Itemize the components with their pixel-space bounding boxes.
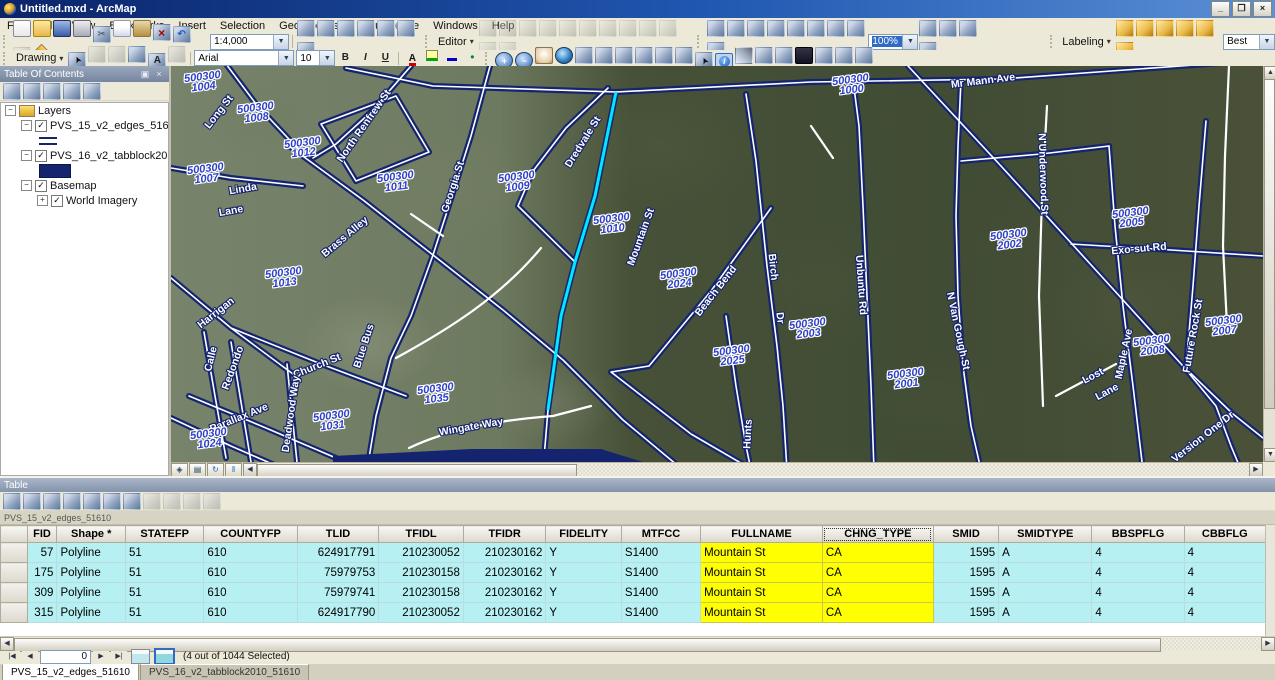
cell-cbbflg[interactable]: 4 xyxy=(1184,603,1265,623)
go-forward-extent-icon[interactable] xyxy=(635,47,653,64)
cell-smidtype[interactable]: A xyxy=(999,583,1092,603)
row-selector[interactable] xyxy=(1,583,28,603)
chevron-down-icon[interactable]: ▼ xyxy=(278,51,293,65)
cell-statefp[interactable]: 51 xyxy=(125,563,203,583)
publish-service-icon[interactable] xyxy=(959,20,977,37)
cell-smid[interactable]: 1595 xyxy=(933,543,998,563)
cell-smidtype[interactable]: A xyxy=(999,563,1092,583)
cell-countyfp[interactable]: 610 xyxy=(204,583,297,603)
layer-visibility-checkbox[interactable]: ✓ xyxy=(51,195,63,207)
cell-statefp[interactable]: 51 xyxy=(125,543,203,563)
cell-countyfp[interactable]: 610 xyxy=(204,543,297,563)
cell-tfidr[interactable]: 210230162 xyxy=(463,543,546,563)
cell-tfidr[interactable]: 210230162 xyxy=(463,563,546,583)
search-window-icon[interactable] xyxy=(357,20,375,37)
related-tables-icon[interactable] xyxy=(23,493,41,510)
arctoolbox-window-icon[interactable] xyxy=(377,20,395,37)
cell-tfidl[interactable]: 210230052 xyxy=(379,543,464,563)
clear-selected-features-icon[interactable] xyxy=(675,47,693,64)
list-by-visibility-icon[interactable] xyxy=(43,83,61,100)
expander-icon[interactable]: − xyxy=(5,105,16,116)
cell-shape-[interactable]: Polyline xyxy=(57,583,126,603)
close-button[interactable]: × xyxy=(1253,1,1272,17)
column-header-tfidr[interactable]: TFIDR xyxy=(463,526,546,543)
layout-view-button[interactable]: ▤ xyxy=(189,463,206,477)
fill-color-icon[interactable] xyxy=(423,47,441,64)
arcmap-window: Untitled.mxd - ArcMap _ ❐ × FileEditView… xyxy=(0,0,1275,680)
toolbar-grip[interactable] xyxy=(3,52,9,65)
zoom-percent-value: 100% xyxy=(872,36,902,47)
toc-tree: −Layers−✓PVS_15_v2_edges_51610−✓PVS_16_v… xyxy=(0,102,169,476)
html-popup-icon[interactable] xyxy=(755,47,773,64)
grid-view-icon[interactable] xyxy=(807,20,825,37)
label-priority-icon[interactable] xyxy=(1136,20,1154,37)
select-by-attributes-icon[interactable] xyxy=(43,493,61,510)
selection-status: (4 out of 1044 Selected) xyxy=(183,651,290,662)
cut-polygons-icon xyxy=(639,20,657,37)
lock-labels-icon[interactable] xyxy=(1176,20,1194,37)
table-row[interactable]: 309Polyline51610759797412102301582102301… xyxy=(1,583,1266,603)
table-row[interactable]: 175Polyline51610759797532102301582102301… xyxy=(1,563,1266,583)
editor-menu[interactable]: Editor xyxy=(434,36,478,48)
column-header-fullname[interactable]: FULLNAME xyxy=(701,526,823,543)
cell-fidelity[interactable]: Y xyxy=(546,563,621,583)
field-calculator-icon xyxy=(183,493,201,510)
list-by-source-icon[interactable] xyxy=(23,83,41,100)
pin-icon[interactable]: ▣ xyxy=(139,69,151,80)
chevron-down-icon[interactable]: ▼ xyxy=(1259,35,1274,49)
map-scale-settings-icon[interactable] xyxy=(297,20,315,37)
window-title: Untitled.mxd - ArcMap xyxy=(20,3,136,15)
pause-labeling-icon[interactable] xyxy=(1196,20,1214,37)
close-icon[interactable]: × xyxy=(153,69,165,79)
font-size-combo[interactable]: 10 ▼ xyxy=(296,50,335,66)
label-weight-icon[interactable] xyxy=(1156,20,1174,37)
paste-rows-icon xyxy=(163,493,181,510)
find-icon[interactable] xyxy=(795,47,813,64)
sheet-tab-pvs_16_v2_tabblock2010_51610[interactable]: PVS_16_v2_tabblock2010_51610 xyxy=(140,664,309,680)
cell-fullname[interactable]: Mountain St xyxy=(701,603,823,623)
time-slider-icon[interactable] xyxy=(835,47,853,64)
cell-tfidl[interactable]: 210230052 xyxy=(379,603,464,623)
paste-icon[interactable] xyxy=(133,20,151,37)
toolbar-grip[interactable] xyxy=(3,35,9,48)
layer-label: World Imagery xyxy=(66,195,137,207)
cell-cbbflg[interactable]: 4 xyxy=(1184,563,1265,583)
row-selector[interactable] xyxy=(1,603,28,623)
toolbar-grip[interactable] xyxy=(425,35,431,48)
map-horizontal-scrollbar[interactable]: ◈ ▤ ↻ ‖ ◀ ▶ xyxy=(171,462,1263,477)
cell-smid[interactable]: 1595 xyxy=(933,583,998,603)
chevron-down-icon[interactable]: ▼ xyxy=(902,35,917,49)
table-window-title: Table xyxy=(4,480,28,491)
pause-drawing-button[interactable]: ‖ xyxy=(225,463,242,477)
map-view[interactable]: Long StNorth Renfrew StGeorgia StLindaLa… xyxy=(171,66,1263,462)
column-header-chng-type[interactable]: CHNG_TYPE xyxy=(822,526,933,543)
first-record-button[interactable]: |◀ xyxy=(4,651,20,663)
record-navigation-bar: |◀ ◀ 0 ▶ ▶| (4 out of 1044 Selected) xyxy=(0,649,1275,664)
zoom-percent-combo[interactable]: 100% ▼ xyxy=(868,34,918,50)
rotate-element-icon xyxy=(88,46,106,63)
map-hscroll-track[interactable] xyxy=(257,464,1249,476)
python-window-icon[interactable] xyxy=(397,20,415,37)
endpoint-arc-icon xyxy=(539,20,557,37)
cell-shape-[interactable]: Polyline xyxy=(57,563,126,583)
toc-title: Table Of Contents xyxy=(4,69,84,80)
grid-horizontal-scrollbar[interactable]: ◀ ▶ xyxy=(0,636,1275,650)
restore-button[interactable]: ❐ xyxy=(1232,1,1251,17)
cell-countyfp[interactable]: 610 xyxy=(204,603,297,623)
cell-tlid[interactable]: 75979741 xyxy=(297,583,379,603)
link-table-icon[interactable] xyxy=(847,20,865,37)
refresh-view-button[interactable]: ↻ xyxy=(207,463,224,477)
cell-fullname[interactable]: Mountain St xyxy=(701,543,823,563)
table-source-label: PVS_15_v2_edges_51610 xyxy=(4,513,111,523)
label-quality-combo[interactable]: Best ▼ xyxy=(1223,34,1275,50)
italic-button[interactable] xyxy=(356,50,374,67)
last-record-button[interactable]: ▶| xyxy=(111,651,127,663)
cell-bbspflg[interactable]: 4 xyxy=(1092,583,1184,603)
cell-chng-type[interactable]: CA xyxy=(822,583,933,603)
layer-label: PVS_15_v2_edges_51610 xyxy=(50,120,169,132)
scroll-right-icon[interactable]: ▶ xyxy=(1249,463,1263,477)
copy-icon[interactable] xyxy=(113,20,131,37)
undo-icon[interactable] xyxy=(173,26,191,43)
page-layout-icon[interactable] xyxy=(919,20,937,37)
label-manager-icon[interactable] xyxy=(1116,20,1134,37)
data-view-button[interactable]: ◈ xyxy=(171,463,188,477)
switch-selection-icon[interactable] xyxy=(63,493,81,510)
toolbar-grip[interactable] xyxy=(1050,35,1056,48)
cell-tlid[interactable]: 624917791 xyxy=(297,543,379,563)
cell-statefp[interactable]: 51 xyxy=(125,603,203,623)
cell-bbspflg[interactable]: 4 xyxy=(1092,603,1184,623)
list-by-selection-icon[interactable] xyxy=(63,83,81,100)
cell-mtfcc[interactable]: S1400 xyxy=(621,603,700,623)
go-to-xy-icon[interactable] xyxy=(775,47,793,64)
line-color-icon[interactable] xyxy=(443,49,461,66)
show-selected-records-button[interactable] xyxy=(154,648,175,665)
column-header-countyfp[interactable]: COUNTYFP xyxy=(204,526,297,543)
split-tool-icon xyxy=(659,20,677,37)
chevron-down-icon[interactable]: ▼ xyxy=(319,51,334,65)
table-row[interactable]: 57Polyline516106249177912102300522102301… xyxy=(1,543,1266,563)
cell-fidelity[interactable]: Y xyxy=(546,543,621,563)
cell-smidtype[interactable]: A xyxy=(999,543,1092,563)
toc-options-icon[interactable] xyxy=(83,83,101,100)
title-bar: Untitled.mxd - ArcMap _ ❐ × xyxy=(0,0,1275,18)
column-header-fidelity[interactable]: FIDELITY xyxy=(546,526,621,543)
zoom-georeference-icon[interactable] xyxy=(767,20,785,37)
point-tool-icon xyxy=(579,20,597,37)
pan-georeference-icon[interactable] xyxy=(747,20,765,37)
cell-cbbflg[interactable]: 4 xyxy=(1184,543,1265,563)
map-vertical-scrollbar[interactable]: ▲ ▼ xyxy=(1263,66,1275,462)
column-header-mtfcc[interactable]: MTFCC xyxy=(621,526,700,543)
layer-visibility-checkbox[interactable]: ✓ xyxy=(35,120,47,132)
cell-tfidl[interactable]: 210230158 xyxy=(379,583,464,603)
delete-field-icon xyxy=(203,493,221,510)
cell-mtfcc[interactable]: S1400 xyxy=(621,563,700,583)
tabblock-polygon xyxy=(333,449,643,462)
cell-shape-[interactable]: Polyline xyxy=(57,603,126,623)
toc-node-world-imagery[interactable]: +✓World Imagery xyxy=(1,193,168,208)
clear-selection-icon[interactable] xyxy=(83,493,101,510)
expander-icon[interactable]: − xyxy=(21,120,32,131)
cell-cbbflg[interactable]: 4 xyxy=(1184,583,1265,603)
grid-vertical-scrollbar[interactable] xyxy=(1265,525,1275,636)
map-scale-combo[interactable]: 1:4,000 ▼ xyxy=(210,34,289,50)
row-selector[interactable] xyxy=(1,563,28,583)
drawing-menu[interactable]: Drawing xyxy=(12,52,67,64)
cell-mtfcc[interactable]: S1400 xyxy=(621,543,700,563)
zoom-to-selected-elements-icon xyxy=(108,46,126,63)
toc-legend-symbol xyxy=(1,133,168,148)
print-icon[interactable] xyxy=(73,20,91,37)
expander-icon[interactable]: − xyxy=(21,180,32,191)
data-driven-pages-icon[interactable] xyxy=(939,20,957,37)
label-quality-value: Best xyxy=(1227,36,1259,47)
scroll-left-icon[interactable]: ◀ xyxy=(243,463,257,477)
toc-node-pvs-15-v2-edges-51610[interactable]: −✓PVS_15_v2_edges_51610 xyxy=(1,118,168,133)
copy-rows-icon xyxy=(143,493,161,510)
table-options-icon[interactable] xyxy=(3,493,21,510)
toc-node-basemap[interactable]: −✓Basemap xyxy=(1,178,168,193)
column-header-statefp[interactable]: STATEFP xyxy=(125,526,203,543)
edge-line-symbol[interactable] xyxy=(39,137,57,145)
cell-bbspflg[interactable]: 4 xyxy=(1092,563,1184,583)
show-all-records-button[interactable] xyxy=(131,649,150,664)
row-selector-header[interactable] xyxy=(1,526,28,543)
fixed-zoom-out-icon[interactable] xyxy=(595,47,613,64)
toolbar-grip[interactable] xyxy=(485,52,491,65)
table-of-contents-window-icon[interactable] xyxy=(317,20,335,37)
measure-icon[interactable] xyxy=(735,47,753,64)
column-header-bbspflg[interactable]: BBSPFLG xyxy=(1092,526,1184,543)
street-edges-layer xyxy=(171,66,1263,462)
drawing-and-tools-toolbar: Drawing Arial ▼ 10 ▼ xyxy=(0,50,1275,67)
layer-label: Layers xyxy=(38,105,71,117)
font-name-value: Arial xyxy=(198,53,278,64)
hyperlink-icon[interactable] xyxy=(815,47,833,64)
cell-chng-type[interactable]: CA xyxy=(822,603,933,623)
fixed-zoom-in-icon[interactable] xyxy=(575,47,593,64)
cell-fid[interactable]: 315 xyxy=(27,603,57,623)
map-scale-value: 1:4,000 xyxy=(214,36,273,47)
layers-icon xyxy=(19,105,35,117)
layer-visibility-checkbox[interactable]: ✓ xyxy=(35,180,47,192)
scroll-up-icon[interactable]: ▲ xyxy=(1264,66,1275,80)
add-control-points-icon[interactable] xyxy=(707,20,725,37)
labeling-menu[interactable]: Labeling xyxy=(1058,36,1115,48)
edit-tool-icon xyxy=(479,20,497,37)
open-icon[interactable] xyxy=(33,20,51,37)
cell-shape-[interactable]: Polyline xyxy=(57,543,126,563)
cell-chng-type[interactable]: CA xyxy=(822,543,933,563)
split-view-icon[interactable] xyxy=(827,20,845,37)
cell-tlid[interactable]: 75979753 xyxy=(297,563,379,583)
zoom-to-selected-icon[interactable] xyxy=(103,493,121,510)
rectangle-shape-icon[interactable] xyxy=(128,46,146,63)
save-icon[interactable] xyxy=(53,20,71,37)
cell-tfidl[interactable]: 210230158 xyxy=(379,563,464,583)
delete-selected-icon[interactable] xyxy=(123,493,141,510)
cell-fid[interactable]: 175 xyxy=(27,563,57,583)
cell-smid[interactable]: 1595 xyxy=(933,563,998,583)
row-selector[interactable] xyxy=(1,543,28,563)
toc-node-pvs-16-v2-tabblock2010-51610[interactable]: −✓PVS_16_v2_tabblock2010_51610 xyxy=(1,148,168,163)
bold-button[interactable] xyxy=(336,50,354,67)
column-header-cbbflg[interactable]: CBBFLG xyxy=(1184,526,1265,543)
edit-annotation-tool-icon xyxy=(499,20,517,37)
viewer-link-icon[interactable] xyxy=(787,20,805,37)
font-name-combo[interactable]: Arial ▼ xyxy=(194,50,294,66)
attribute-grid[interactable]: FIDShape *STATEFPCOUNTYFPTLIDTFIDLTFIDRF… xyxy=(0,525,1266,636)
cell-fullname[interactable]: Mountain St xyxy=(701,563,823,583)
pan-icon[interactable] xyxy=(535,47,553,64)
previous-record-button[interactable]: ◀ xyxy=(22,651,38,663)
layer-label: PVS_16_v2_tabblock2010_51610 xyxy=(50,150,169,162)
font-size-value: 10 xyxy=(300,53,319,64)
cell-mtfcc[interactable]: S1400 xyxy=(621,583,700,603)
minimize-button[interactable]: _ xyxy=(1211,1,1230,17)
column-header-smid[interactable]: SMID xyxy=(933,526,998,543)
cell-smid[interactable]: 1595 xyxy=(933,603,998,623)
column-header-tlid[interactable]: TLID xyxy=(297,526,379,543)
trace-tool-icon xyxy=(559,20,577,37)
go-back-extent-icon[interactable] xyxy=(615,47,633,64)
table-of-contents-panel: Table Of Contents ▣ × −Layers−✓PVS_15_v2… xyxy=(0,66,171,476)
edit-vertices-icon xyxy=(599,20,617,37)
column-header-tfidl[interactable]: TFIDL xyxy=(379,526,464,543)
select-features-icon[interactable] xyxy=(655,47,673,64)
reshape-icon xyxy=(619,20,637,37)
cell-fidelity[interactable]: Y xyxy=(546,603,621,623)
cell-tfidr[interactable]: 210230162 xyxy=(463,603,546,623)
arcmap-app-icon xyxy=(4,3,16,15)
edit-vertices-drawing-icon xyxy=(168,46,186,63)
scroll-down-icon[interactable]: ▼ xyxy=(1264,448,1275,462)
cell-statefp[interactable]: 51 xyxy=(125,583,203,603)
column-header-fid[interactable]: FID xyxy=(27,526,57,543)
catalog-window-icon[interactable] xyxy=(337,20,355,37)
cell-fidelity[interactable]: Y xyxy=(546,583,621,603)
straight-segment-icon xyxy=(519,20,537,37)
grid-hscroll-track[interactable] xyxy=(14,638,1261,650)
expander-icon[interactable]: + xyxy=(37,195,48,206)
create-viewer-window-icon[interactable] xyxy=(855,47,873,64)
cell-fid[interactable]: 309 xyxy=(27,583,57,603)
layer-label: Basemap xyxy=(50,180,96,192)
column-header-shape-[interactable]: Shape * xyxy=(57,526,126,543)
chevron-down-icon[interactable]: ▼ xyxy=(273,35,288,49)
cell-tlid[interactable]: 624917790 xyxy=(297,603,379,623)
table-toolbar xyxy=(0,492,1275,511)
delete-icon[interactable] xyxy=(153,24,171,41)
block-fill-symbol[interactable] xyxy=(39,164,71,178)
toc-legend-symbol xyxy=(1,163,168,178)
toc-node-layers[interactable]: −Layers xyxy=(1,103,168,118)
table-sheet-tabs: PVS_15_v2_edges_51610PVS_16_v2_tabblock2… xyxy=(0,664,1275,680)
cell-countyfp[interactable]: 610 xyxy=(204,563,297,583)
table-row[interactable]: 315Polyline51610624917790210230052210230… xyxy=(1,603,1266,623)
record-number-input[interactable]: 0 xyxy=(40,650,91,664)
full-extent-icon[interactable] xyxy=(555,47,573,64)
cell-bbspflg[interactable]: 4 xyxy=(1092,543,1184,563)
attribute-table-window: Table PVS_15_v2_edges_51610 FIDShape *ST… xyxy=(0,476,1275,680)
menu-windows[interactable]: Windows xyxy=(426,19,485,33)
cell-chng-type[interactable]: CA xyxy=(822,563,933,583)
cell-fid[interactable]: 57 xyxy=(27,543,57,563)
column-header-smidtype[interactable]: SMIDTYPE xyxy=(999,526,1092,543)
cell-smidtype[interactable]: A xyxy=(999,603,1092,623)
list-by-drawing-order-icon[interactable] xyxy=(3,83,21,100)
cell-tfidr[interactable]: 210230162 xyxy=(463,583,546,603)
new-icon[interactable] xyxy=(13,20,31,37)
auto-adjust-icon[interactable] xyxy=(727,20,745,37)
marker-color-icon[interactable] xyxy=(463,49,481,66)
layer-visibility-checkbox[interactable]: ✓ xyxy=(35,150,47,162)
menu-selection[interactable]: Selection xyxy=(213,19,272,33)
underline-button[interactable] xyxy=(376,50,394,67)
cut-icon[interactable] xyxy=(93,26,111,43)
cell-fullname[interactable]: Mountain St xyxy=(701,583,823,603)
expander-icon[interactable]: − xyxy=(21,150,32,161)
next-record-button[interactable]: ▶ xyxy=(93,651,109,663)
sheet-tab-pvs_15_v2_edges_51610[interactable]: PVS_15_v2_edges_51610 xyxy=(2,664,139,680)
